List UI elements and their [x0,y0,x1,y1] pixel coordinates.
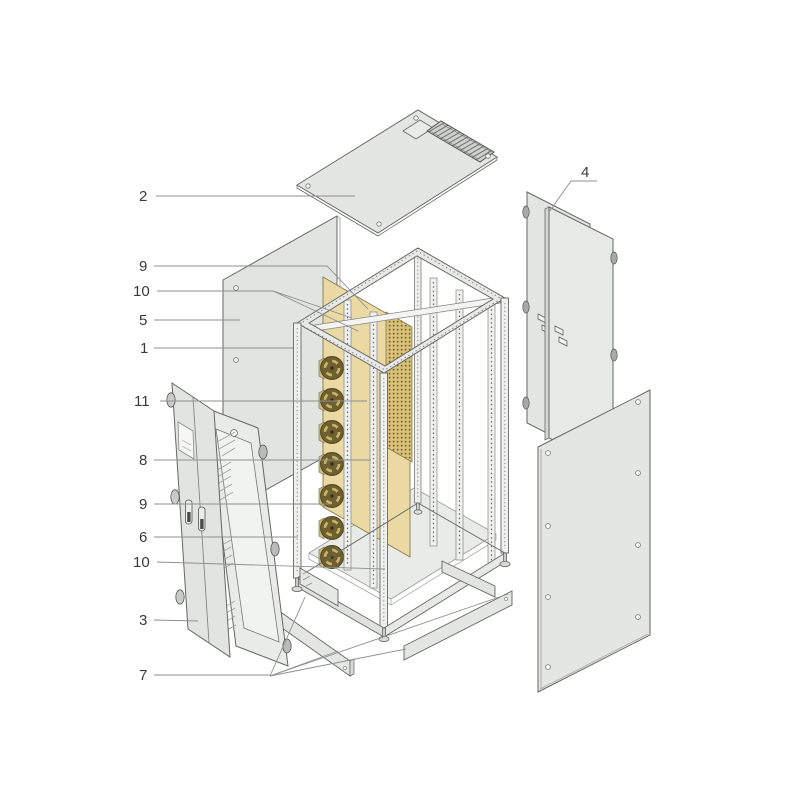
part-label-8: 8 [139,452,147,469]
hinge-icon [523,301,529,313]
lock-slot [200,519,203,529]
mounting-rail [344,300,351,570]
part-label-7: 7 [139,667,147,684]
hinge-icon [271,542,279,556]
hinge-icon [523,206,529,218]
part-label-11: 11 [134,393,150,410]
hinge-icon [611,252,617,264]
part-label-2: 2 [139,188,147,205]
hinge-icon [171,490,179,504]
part-label-10: 10 [133,554,150,571]
mounting-rail [456,290,463,560]
fan-icon [319,421,344,444]
part-label-1: 1 [140,340,148,357]
lock-slot [187,512,190,522]
fan-icon [319,389,344,412]
hinge-icon [176,590,184,604]
part-label-5: 5 [139,312,147,329]
part-label-3: 3 [139,612,147,629]
mounting-rail [430,278,437,546]
hinge-icon [259,445,267,459]
part-label-6: 6 [139,529,147,546]
hinge-icon [611,349,617,361]
part-label-10: 10 [133,283,150,300]
mounting-rail [488,301,495,568]
plinth-strip-front [404,591,512,660]
part-label-9: 9 [139,496,147,513]
plinth-hole [504,597,507,600]
part-label-4: 4 [581,164,589,181]
exploded-diagram-svg: 2910511189610374 [0,0,800,800]
mounting-rail [370,312,377,588]
plinth-strip-rear-left [300,568,338,606]
fan-icon [319,517,344,540]
hinge-icon [283,639,291,653]
top-cover-panel [297,110,497,236]
cable-patch-band [386,312,412,462]
plinth-hole [343,666,346,669]
top-cover-face [297,110,497,233]
part-label-9: 9 [139,258,147,275]
diagram-canvas: 2910511189610374 [0,0,800,800]
hinge-icon [523,397,529,409]
hinge-icon [167,393,175,407]
plinth-strip-front-left-flange [350,659,354,676]
fan-icon [319,357,344,380]
fan-icon [319,453,344,476]
rear-panel-hole [234,286,239,291]
rear-panel-hole [234,358,239,363]
